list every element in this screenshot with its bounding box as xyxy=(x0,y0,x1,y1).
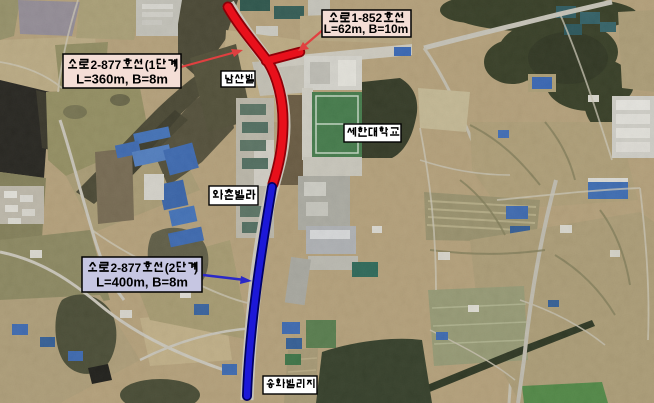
svg-text:2-877: 2-877 xyxy=(111,261,142,275)
svg-text:(2: (2 xyxy=(165,261,176,275)
svg-text:(1: (1 xyxy=(145,58,156,72)
svg-text:2-877: 2-877 xyxy=(91,58,122,72)
svg-text:): ) xyxy=(194,261,198,275)
svg-text:L=62m, B=10m: L=62m, B=10m xyxy=(324,22,409,36)
svg-text:L=360m, B=8m: L=360m, B=8m xyxy=(76,72,168,87)
svg-text:): ) xyxy=(174,58,178,72)
svg-text:L=400m, B=8m: L=400m, B=8m xyxy=(96,275,188,290)
